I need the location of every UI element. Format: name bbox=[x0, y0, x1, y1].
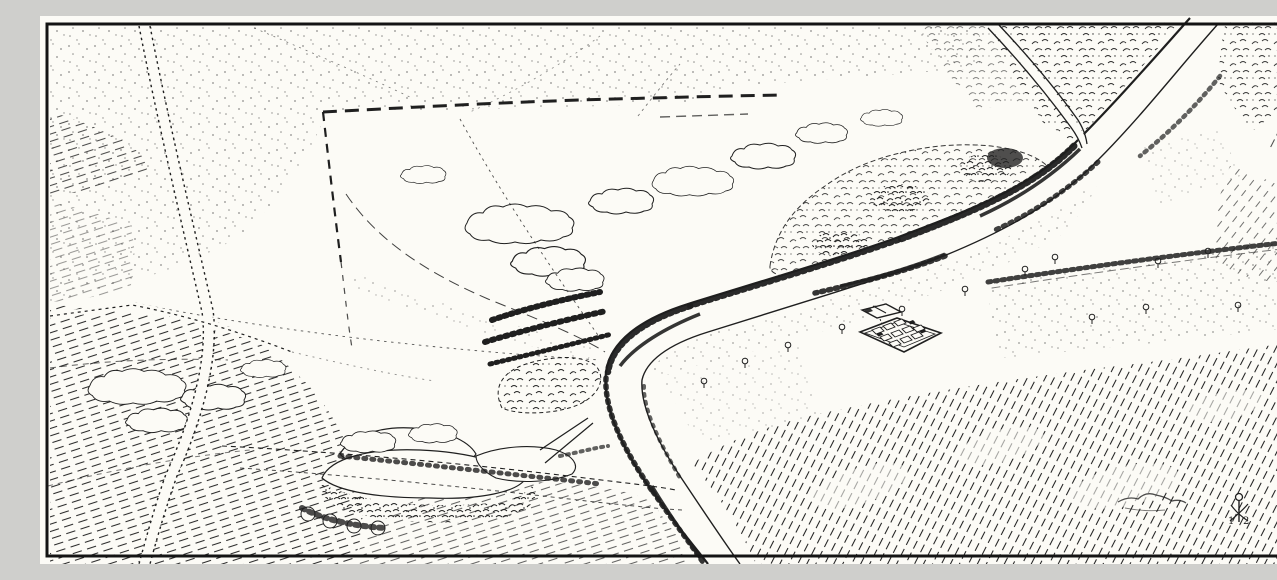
drawing-canvas: 1 2 bbox=[40, 16, 1277, 564]
monogram-digit-right: 2 bbox=[1243, 516, 1249, 527]
monogram-digit-left: 1 bbox=[1228, 516, 1234, 527]
aerial-landscape-drawing: 1 2 bbox=[40, 16, 1277, 564]
